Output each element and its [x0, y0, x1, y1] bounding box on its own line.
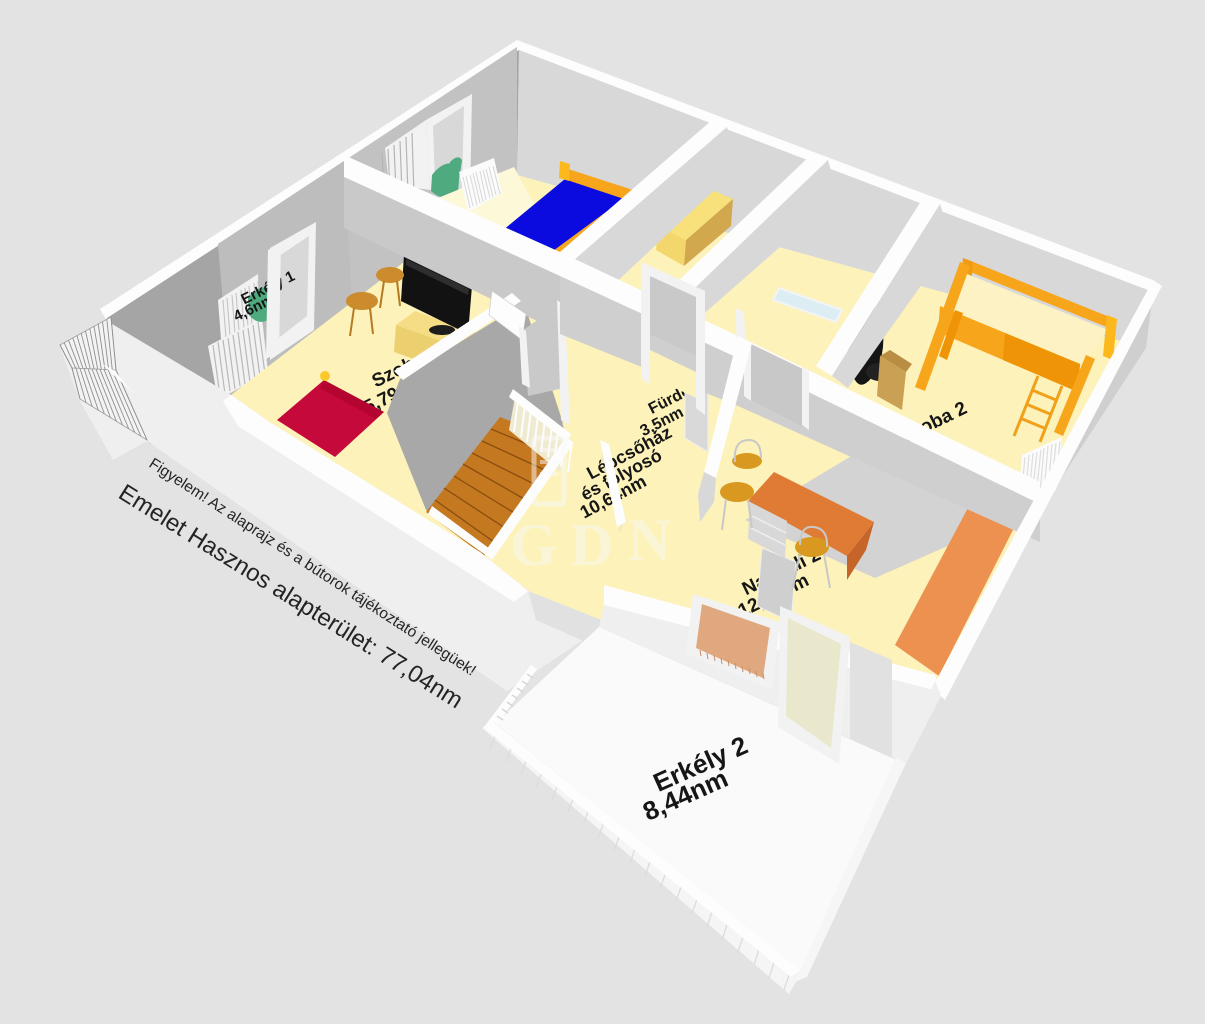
svg-text:D: D [570, 512, 613, 578]
svg-text:G: G [510, 512, 557, 578]
svg-text:N: N [628, 507, 671, 573]
